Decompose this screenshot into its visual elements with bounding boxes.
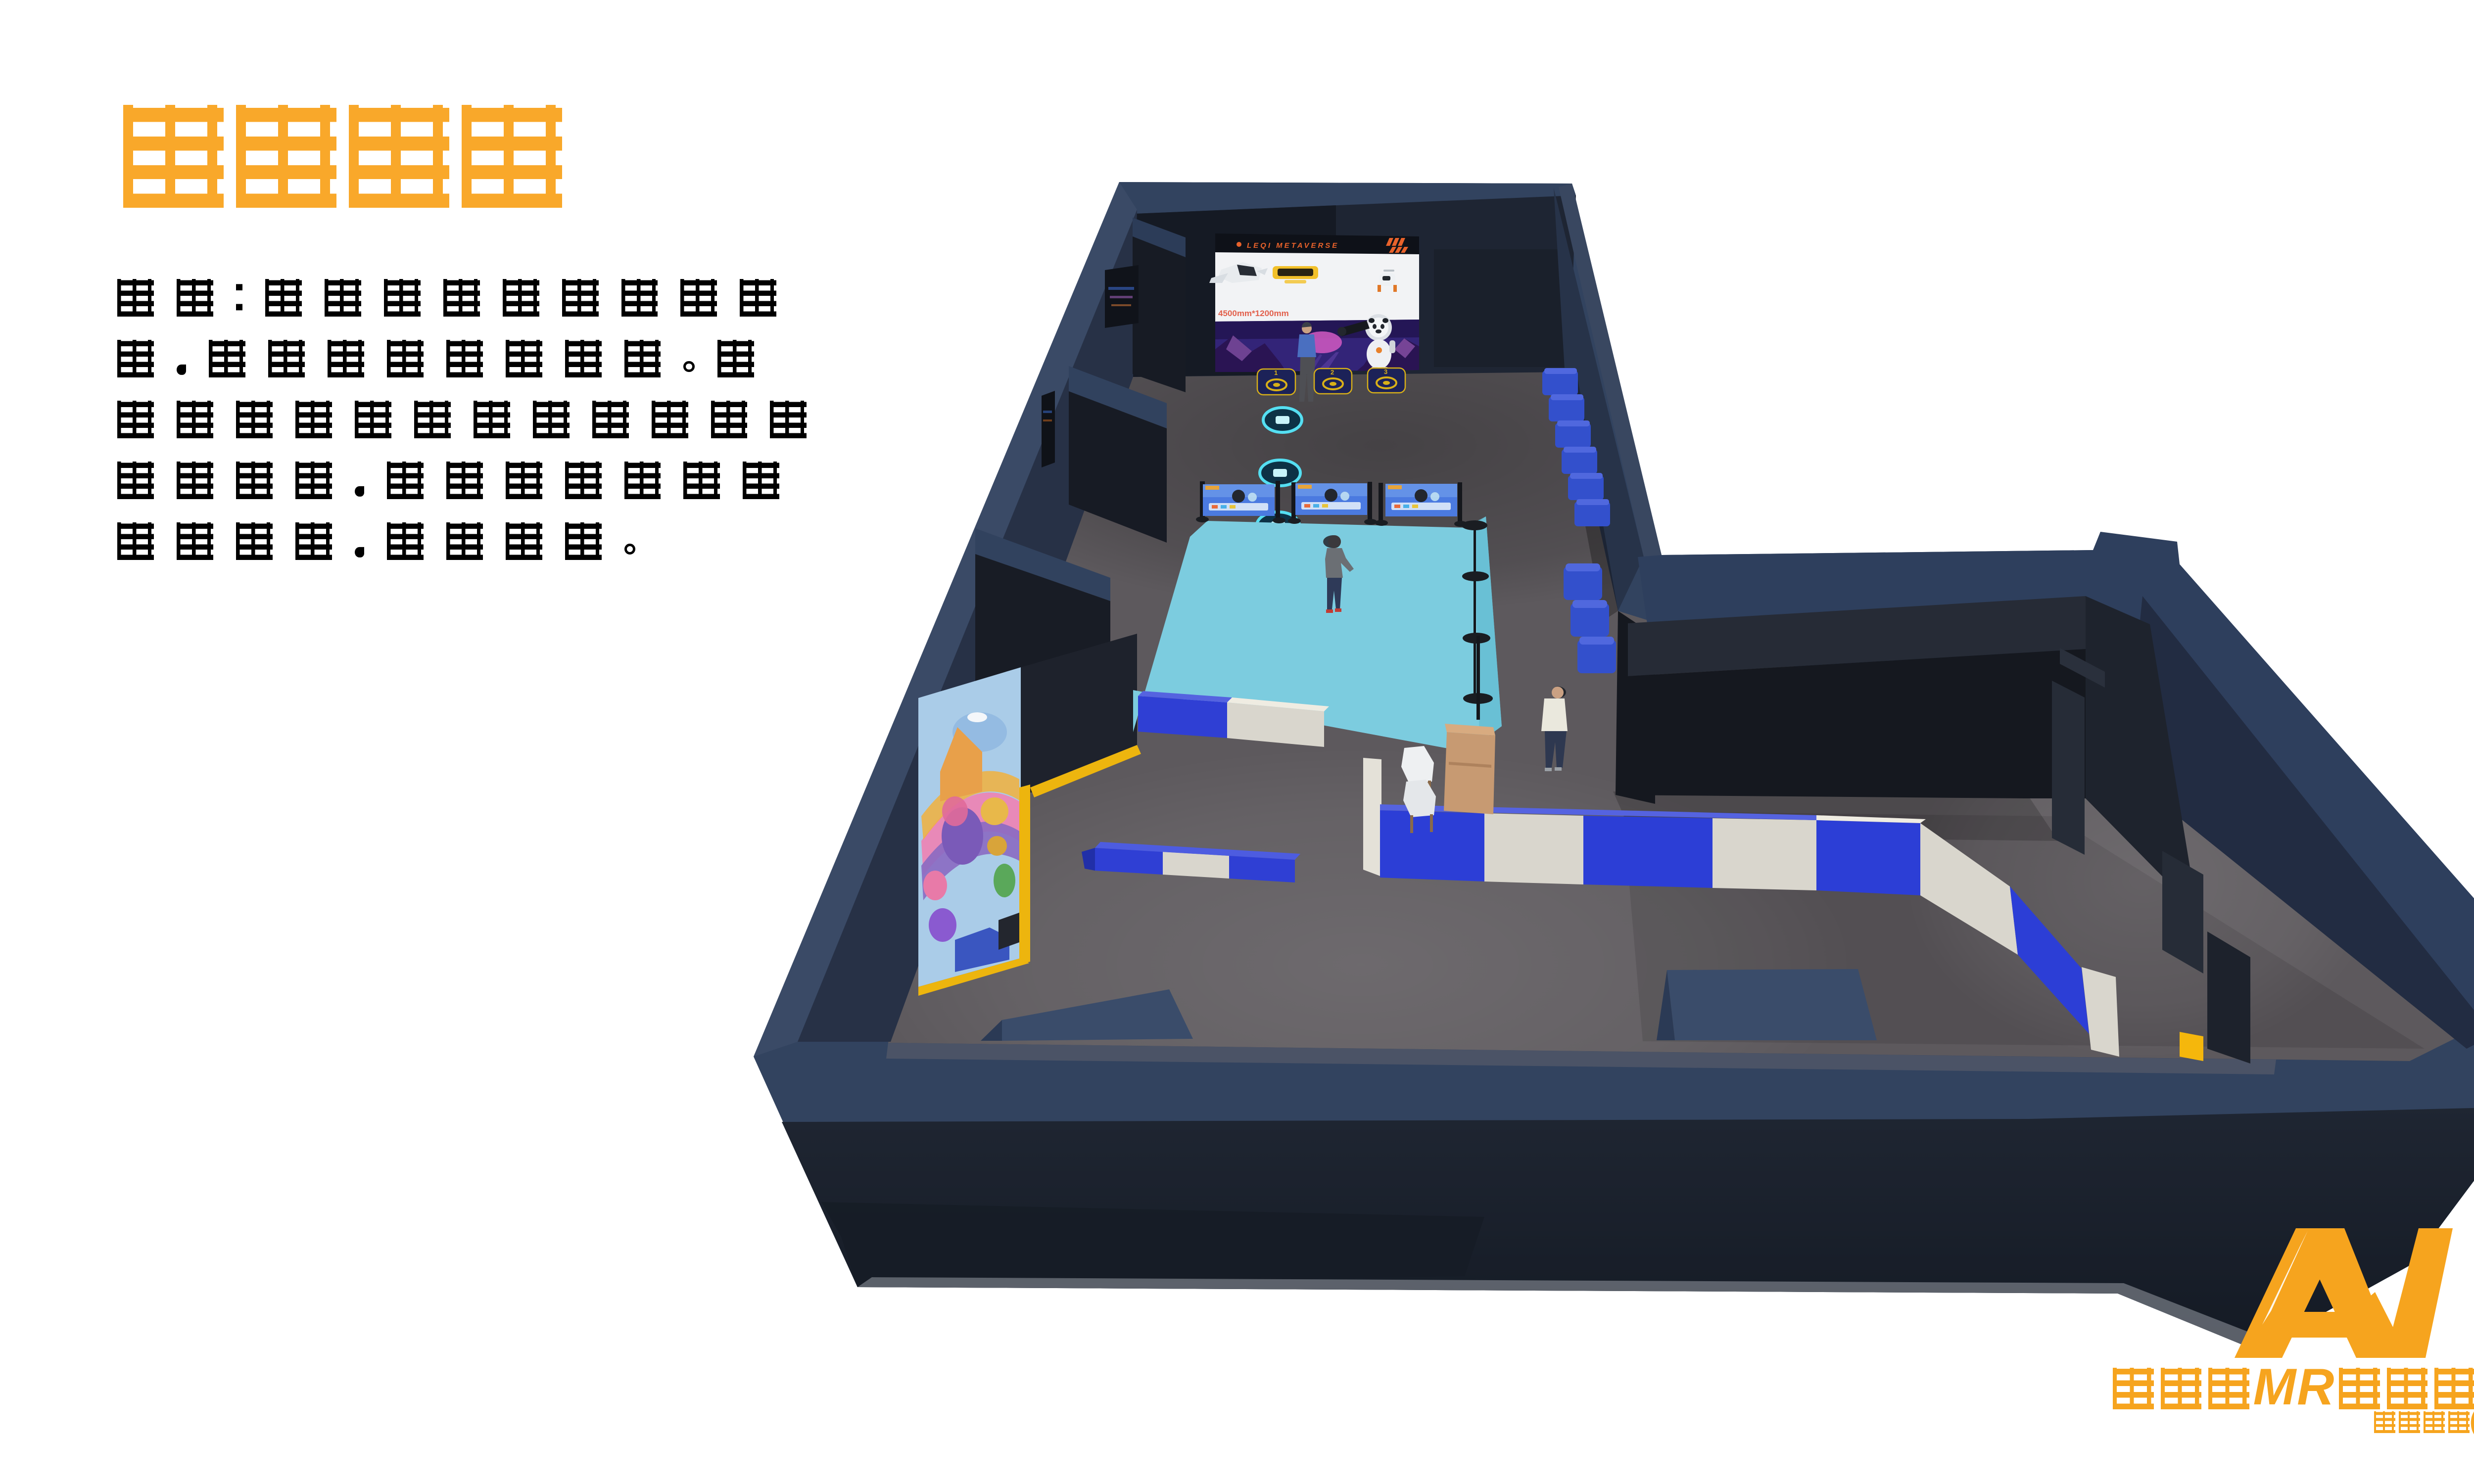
svg-text:2: 2 [1331,369,1334,376]
svg-text:4500mm*1200mm: 4500mm*1200mm [1218,309,1289,318]
svg-text:1: 1 [1274,369,1278,376]
svg-text:LEQI METAVERSE: LEQI METAVERSE [1247,241,1339,250]
svg-text:3: 3 [1384,368,1387,375]
